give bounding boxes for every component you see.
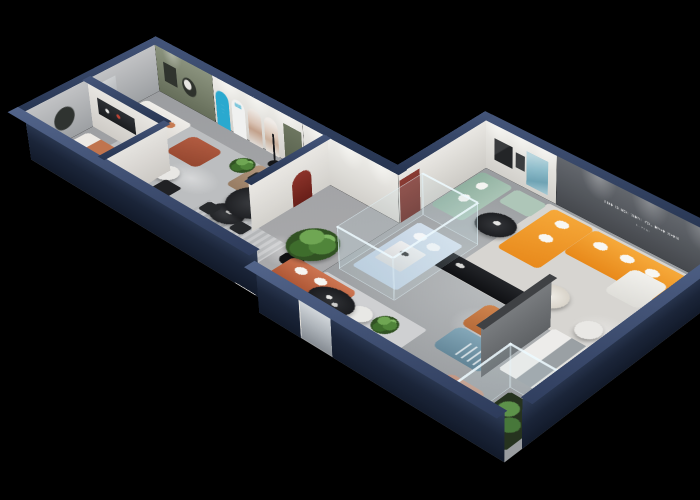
showroom-3d-render: ····· ····· ···888LIFE IS NOT WHAT YOU H… xyxy=(0,0,700,500)
